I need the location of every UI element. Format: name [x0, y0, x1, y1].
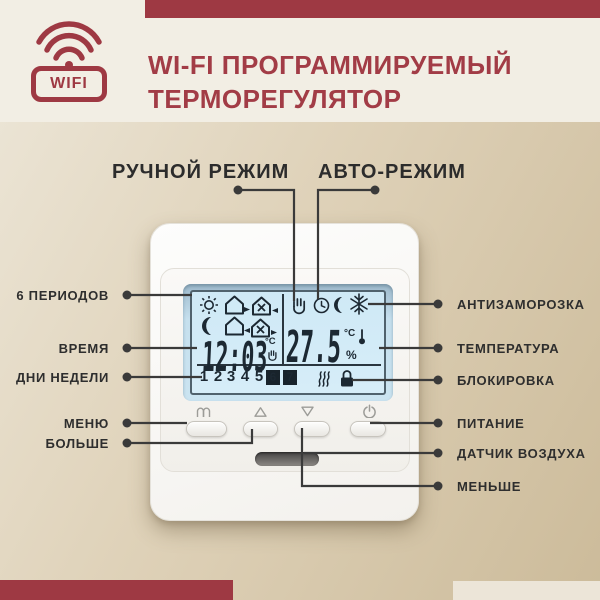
auto-mode-label: АВТО-РЕЖИМ — [318, 161, 466, 184]
clock-auto-icon — [313, 297, 330, 314]
power-icon — [363, 404, 376, 418]
lcd-display: 12:03 °C 27.5 °C % 1 2 3 4 5 6 7 — [190, 290, 386, 395]
heating-waves-icon — [316, 369, 331, 388]
lcd-temperature-unit: °C — [344, 328, 355, 339]
thermometer-icon — [358, 328, 366, 345]
menu-book-icon — [196, 406, 211, 418]
callout-6-periods: 6 ПЕРИОДОВ — [16, 288, 109, 303]
callout-antifreeze: АНТИЗАМОРОЗКА — [457, 297, 585, 312]
arrow-up-icon — [254, 406, 267, 417]
wifi-badge: WIFI — [31, 66, 107, 102]
sun-icon — [198, 294, 220, 316]
snowflake-antifreeze-icon — [348, 293, 370, 315]
callout-menu: МЕНЮ — [64, 416, 109, 431]
day-2: 2 — [211, 368, 225, 385]
callout-air-sensor: ДАТЧИК ВОЗДУХА — [457, 446, 586, 461]
arrow-down-icon — [301, 406, 314, 417]
callout-week-days: ДНИ НЕДЕЛИ — [16, 370, 109, 385]
down-button[interactable] — [294, 421, 330, 437]
menu-button[interactable] — [186, 421, 227, 437]
callout-less: МЕНЬШЕ — [457, 479, 521, 494]
wifi-icon — [27, 12, 113, 70]
bottom-light-panel — [453, 581, 600, 600]
callout-power: ПИТАНИЕ — [457, 416, 525, 431]
up-button[interactable] — [243, 421, 278, 437]
top-accent-bar — [145, 0, 600, 18]
hand-small-icon — [267, 349, 278, 362]
lcd-time-unit: °C — [265, 336, 276, 347]
day-5: 5 — [252, 368, 266, 385]
air-sensor-slot — [255, 452, 319, 466]
thermostat-infographic: WIFI WI-FI ПРОГРАММИРУЕМЫЙ ТЕРМОРЕГУЛЯТО… — [0, 0, 600, 600]
lcd-divider-line — [282, 294, 284, 364]
house-leave-icon — [223, 294, 251, 315]
moon-night-icon — [331, 296, 346, 314]
callout-lock: БЛОКИРОВКА — [457, 373, 555, 388]
lcd-temperature: 27.5 — [285, 326, 342, 370]
day-4: 4 — [238, 368, 252, 385]
day-6-active: 6 — [266, 370, 280, 385]
callout-more: БОЛЬШЕ — [45, 436, 109, 451]
power-button[interactable] — [350, 421, 386, 437]
day-3: 3 — [224, 368, 238, 385]
page-title-line1: WI-FI ПРОГРАММИРУЕМЫЙ — [148, 50, 512, 81]
bottom-accent-bar — [0, 580, 233, 600]
lock-icon — [340, 368, 354, 388]
day-1: 1 — [197, 368, 211, 385]
callout-time: ВРЕМЯ — [59, 341, 109, 356]
page-title-line2: ТЕРМОРЕГУЛЯТОР — [148, 84, 401, 115]
house-work-arrive-icon — [250, 295, 279, 316]
wifi-badge-label: WIFI — [50, 75, 88, 93]
lcd-humidity-symbol: % — [346, 348, 357, 362]
manual-mode-label: РУЧНОЙ РЕЖИМ — [112, 161, 289, 184]
callout-temperature: ТЕМПЕРАТУРА — [457, 341, 559, 356]
hand-manual-icon — [291, 296, 308, 315]
day-7-active: 7 — [283, 370, 297, 385]
